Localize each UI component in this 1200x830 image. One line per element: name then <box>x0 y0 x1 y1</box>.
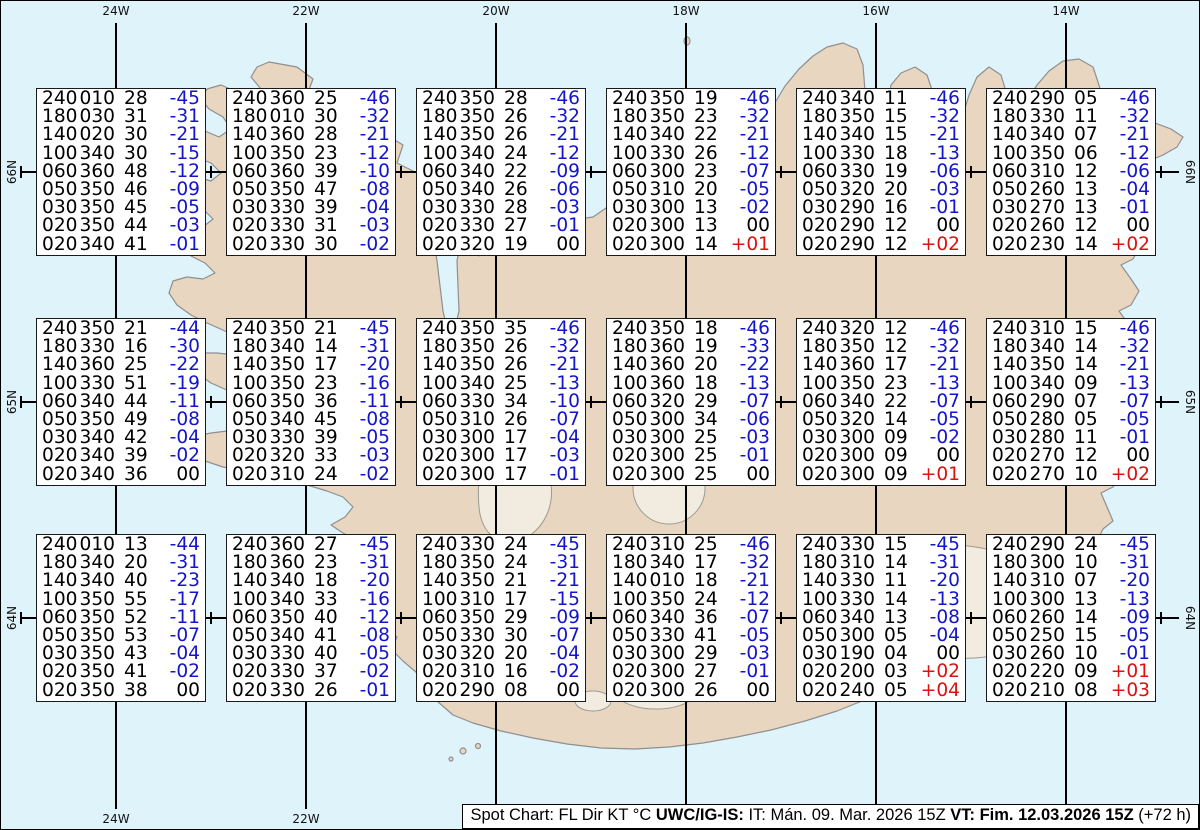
spot-data-row: 02027010+02 <box>992 466 1150 484</box>
spot-box-64N-24W: 24001013-4418034020-3114034040-231003505… <box>36 534 206 702</box>
spot-box-66N-20W: 24035028-4618035026-3214035026-211003402… <box>416 88 586 256</box>
temperature-value: +02 <box>1111 236 1150 254</box>
caption-segment: Spot Chart: FL Dir KT °C <box>470 806 655 825</box>
flight-level-value: 020 <box>802 663 838 681</box>
flight-level-value: 140 <box>422 356 458 374</box>
wind-speed-value: 22 <box>694 126 718 144</box>
flight-level-value: 140 <box>992 572 1028 590</box>
wind-speed-value: 12 <box>884 236 908 254</box>
temperature-value: -01 <box>735 447 770 465</box>
wind-direction-value: 330 <box>270 682 306 700</box>
vestmannaeyjar-island <box>476 744 481 749</box>
wind-speed-value: 08 <box>504 682 528 700</box>
spot-data-row: 02034039-02 <box>42 447 200 465</box>
spot-data-row: 14035026-21 <box>422 356 580 374</box>
longitude-label-bottom: 24W <box>102 812 129 826</box>
wind-speed-value: 09 <box>1074 663 1098 681</box>
wind-direction-value: 300 <box>460 447 496 465</box>
temperature-value: +01 <box>921 466 960 484</box>
flight-level-value: 140 <box>612 572 648 590</box>
spot-box-64N-18W: 24031025-4618034017-3214001018-211003502… <box>606 534 776 702</box>
flight-level-value: 020 <box>42 663 78 681</box>
graticule-tick <box>780 612 782 624</box>
spot-data-row: 02031016-02 <box>422 663 580 681</box>
spot-data-row: 02023014+02 <box>992 236 1150 254</box>
flight-level-value: 020 <box>992 447 1028 465</box>
wind-speed-value: 12 <box>884 217 908 235</box>
spot-data-row: 14001018-21 <box>612 572 770 590</box>
flight-level-value: 020 <box>992 466 1028 484</box>
graticule-tick <box>20 612 22 624</box>
spot-data-row: 02020003+02 <box>802 663 960 681</box>
wind-speed-value: 39 <box>124 447 148 465</box>
spot-data-row: 02033037-02 <box>232 663 390 681</box>
spot-box-64N-16W: 24033015-4518031014-3114033011-201003301… <box>796 534 966 702</box>
spot-data-row: 02031024-02 <box>232 466 390 484</box>
wind-direction-value: 340 <box>650 126 686 144</box>
wind-direction-value: 340 <box>840 126 876 144</box>
wind-speed-value: 14 <box>1074 356 1098 374</box>
spot-data-row: 02032033-03 <box>232 447 390 465</box>
temperature-value: 00 <box>735 466 770 484</box>
temperature-value: -03 <box>165 217 200 235</box>
wind-speed-value: 30 <box>314 236 338 254</box>
temperature-value: 00 <box>545 236 580 254</box>
temperature-value: -21 <box>735 572 770 590</box>
spot-data-row: 02030014+01 <box>612 236 770 254</box>
temperature-value: -22 <box>165 356 200 374</box>
wind-speed-value: 26 <box>694 682 718 700</box>
temperature-value: -23 <box>165 572 200 590</box>
graticule-tick <box>590 612 592 624</box>
flight-level-value: 020 <box>232 682 268 700</box>
temperature-value: +02 <box>1111 466 1150 484</box>
flight-level-value: 140 <box>232 572 268 590</box>
wind-speed-value: 20 <box>694 356 718 374</box>
wind-speed-value: 18 <box>694 572 718 590</box>
temperature-value: -01 <box>165 236 200 254</box>
spot-data-row: 14034015-21 <box>802 126 960 144</box>
flight-level-value: 020 <box>992 682 1028 700</box>
wind-direction-value: 340 <box>270 572 306 590</box>
wind-speed-value: 27 <box>694 663 718 681</box>
latitude-label-right: 64N <box>1183 606 1197 630</box>
graticule-tick <box>780 396 782 408</box>
graticule-tick <box>210 396 212 408</box>
spot-box-65N-14W: 24031015-4618034014-3214035014-211003400… <box>986 318 1156 486</box>
flight-level-value: 020 <box>422 217 458 235</box>
wind-direction-value: 290 <box>840 236 876 254</box>
longitude-label-top: 22W <box>292 4 319 18</box>
flight-level-value: 140 <box>232 126 268 144</box>
wind-direction-value: 300 <box>650 663 686 681</box>
spot-chart-map: 24W24W22W22W20W18W16W14W66N66N65N65N64N6… <box>0 0 1200 830</box>
spot-data-row: 02021008+03 <box>992 682 1150 700</box>
wind-speed-value: 33 <box>314 447 338 465</box>
wind-speed-value: 07 <box>1074 572 1098 590</box>
spot-data-row: 14031007-20 <box>992 572 1150 590</box>
temperature-value: -03 <box>355 447 390 465</box>
wind-direction-value: 310 <box>1030 572 1066 590</box>
spot-data-row: 02030017-03 <box>422 447 580 465</box>
wind-speed-value: 41 <box>124 236 148 254</box>
flight-level-value: 020 <box>42 217 78 235</box>
wind-speed-value: 09 <box>884 447 908 465</box>
latitude-label-left: 65N <box>5 390 19 414</box>
longitude-label-top: 18W <box>672 4 699 18</box>
wind-speed-value: 19 <box>504 236 528 254</box>
wind-speed-value: 37 <box>314 663 338 681</box>
wind-direction-value: 340 <box>80 466 116 484</box>
longitude-label-top: 24W <box>102 4 129 18</box>
spot-data-row: 0203000900 <box>802 447 960 465</box>
temperature-value: -02 <box>545 663 580 681</box>
flight-level-value: 140 <box>802 572 838 590</box>
flight-level-value: 020 <box>802 466 838 484</box>
spot-data-row: 14035014-21 <box>992 356 1150 374</box>
wind-speed-value: 05 <box>884 682 908 700</box>
wind-direction-value: 330 <box>270 236 306 254</box>
graticule-tick <box>20 166 22 178</box>
wind-speed-value: 38 <box>124 682 148 700</box>
flight-level-value: 020 <box>232 217 268 235</box>
wind-direction-value: 210 <box>1030 682 1066 700</box>
wind-direction-value: 300 <box>650 217 686 235</box>
temperature-value: -22 <box>735 356 770 374</box>
flight-level-value: 140 <box>232 356 268 374</box>
wind-speed-value: 12 <box>1074 447 1098 465</box>
flight-level-value: 020 <box>612 466 648 484</box>
graticule-tick <box>400 166 402 178</box>
wind-speed-value: 17 <box>314 356 338 374</box>
wind-direction-value: 240 <box>840 682 876 700</box>
wind-direction-value: 330 <box>270 217 306 235</box>
spot-data-row: 14036025-22 <box>42 356 200 374</box>
wind-speed-value: 30 <box>124 126 148 144</box>
spot-box-64N-20W: 24033024-4518035024-3114035021-211003101… <box>416 534 586 702</box>
temperature-value: +01 <box>731 236 770 254</box>
wind-direction-value: 330 <box>270 663 306 681</box>
wind-direction-value: 200 <box>840 663 876 681</box>
temperature-value: 00 <box>925 217 960 235</box>
graticule-tick <box>970 396 972 408</box>
wind-direction-value: 350 <box>1030 356 1066 374</box>
spot-box-66N-14W: 24029005-4618033011-3214034007-211003500… <box>986 88 1156 256</box>
wind-speed-value: 17 <box>504 447 528 465</box>
spot-data-row: 02030027-01 <box>612 663 770 681</box>
spot-box-65N-18W: 24035018-4618036019-3314036020-221003601… <box>606 318 776 486</box>
spot-data-row: 0203002500 <box>612 466 770 484</box>
spot-data-row: 02033027-01 <box>422 217 580 235</box>
temperature-value: 00 <box>925 447 960 465</box>
temperature-value: -02 <box>355 663 390 681</box>
caption-bar: Spot Chart: FL Dir KT °C UWC/IG-IS: IT: … <box>462 804 1199 829</box>
spot-data-row: 14035017-20 <box>232 356 390 374</box>
caption-segment: VT: Fim. 12.03.2026 15Z <box>950 806 1133 825</box>
wind-direction-value: 300 <box>650 447 686 465</box>
flight-level-value: 020 <box>612 682 648 700</box>
flight-level-value: 020 <box>42 447 78 465</box>
flight-level-value: 020 <box>422 663 458 681</box>
temperature-value: 00 <box>165 682 200 700</box>
spot-data-row: 14033011-20 <box>802 572 960 590</box>
wind-speed-value: 13 <box>694 217 718 235</box>
flight-level-value: 140 <box>422 126 458 144</box>
longitude-label-top: 16W <box>862 4 889 18</box>
graticule-tick <box>20 396 22 408</box>
flight-level-value: 140 <box>612 126 648 144</box>
wind-direction-value: 300 <box>650 466 686 484</box>
spot-box-66N-22W: 24036025-4618001030-3214036028-211003502… <box>226 88 396 256</box>
flight-level-value: 140 <box>42 572 78 590</box>
graticule-tick <box>590 396 592 408</box>
wind-direction-value: 340 <box>80 572 116 590</box>
temperature-value: -21 <box>925 356 960 374</box>
graticule-tick <box>590 166 592 178</box>
wind-speed-value: 36 <box>124 466 148 484</box>
wind-direction-value: 010 <box>650 572 686 590</box>
spot-data-row: 0202601200 <box>992 217 1150 235</box>
graticule-tick <box>970 166 972 178</box>
flight-level-value: 020 <box>232 663 268 681</box>
flight-level-value: 020 <box>232 447 268 465</box>
wind-speed-value: 16 <box>504 663 528 681</box>
spot-data-row: 0202900800 <box>422 682 580 700</box>
spot-data-row: 0203001300 <box>612 217 770 235</box>
latitude-label-right: 66N <box>1183 160 1197 184</box>
wind-speed-value: 09 <box>884 466 908 484</box>
longitude-label-top: 20W <box>482 4 509 18</box>
longitude-label-top: 14W <box>1052 4 1079 18</box>
temperature-value: -02 <box>355 466 390 484</box>
spot-data-row: 02033031-03 <box>232 217 390 235</box>
graticule-tick <box>210 166 212 178</box>
spot-data-row: 02024005+04 <box>802 682 960 700</box>
spot-data-row: 02033030-02 <box>232 236 390 254</box>
wind-direction-value: 220 <box>1030 663 1066 681</box>
flight-level-value: 020 <box>802 447 838 465</box>
temperature-value: -01 <box>735 663 770 681</box>
wind-direction-value: 300 <box>840 447 876 465</box>
wind-direction-value: 270 <box>1030 447 1066 465</box>
caption-segment: IT: Mán. 09. Mar. 2026 15Z <box>744 806 950 825</box>
wind-speed-value: 14 <box>1074 236 1098 254</box>
temperature-value: -21 <box>545 126 580 144</box>
wind-direction-value: 350 <box>80 217 116 235</box>
flight-level-value: 020 <box>422 447 458 465</box>
flight-level-value: 140 <box>42 126 78 144</box>
spot-data-row: 0203002600 <box>612 682 770 700</box>
wind-direction-value: 350 <box>460 126 496 144</box>
wind-direction-value: 310 <box>460 663 496 681</box>
temperature-value: +01 <box>1111 663 1150 681</box>
flight-level-value: 140 <box>612 356 648 374</box>
wind-speed-value: 26 <box>504 126 528 144</box>
temperature-value: -21 <box>735 126 770 144</box>
wind-speed-value: 44 <box>124 217 148 235</box>
temperature-value: 00 <box>735 682 770 700</box>
spot-data-row: 14035026-21 <box>422 126 580 144</box>
temperature-value: -01 <box>545 217 580 235</box>
spot-box-64N-14W: 24029024-4518030010-3114031007-201003001… <box>986 534 1156 702</box>
graticule-tick <box>970 612 972 624</box>
spot-data-row: 14035021-21 <box>422 572 580 590</box>
wind-direction-value: 320 <box>460 236 496 254</box>
wind-direction-value: 020 <box>80 126 116 144</box>
flight-level-value: 020 <box>422 682 458 700</box>
temperature-value: 00 <box>165 466 200 484</box>
temperature-value: -21 <box>545 356 580 374</box>
temperature-value: 00 <box>1115 447 1150 465</box>
spot-box-65N-24W: 24035021-4418033016-3014036025-221003305… <box>36 318 206 486</box>
wind-direction-value: 350 <box>460 572 496 590</box>
flight-level-value: 020 <box>992 663 1028 681</box>
wind-speed-value: 17 <box>884 356 908 374</box>
spot-data-row: 02030009+01 <box>802 466 960 484</box>
wind-speed-value: 14 <box>694 236 718 254</box>
wind-speed-value: 25 <box>124 356 148 374</box>
latitude-label-right: 65N <box>1183 390 1197 414</box>
flight-level-value: 020 <box>992 217 1028 235</box>
flight-level-value: 020 <box>802 236 838 254</box>
spot-data-row: 0203201900 <box>422 236 580 254</box>
flight-level-value: 020 <box>612 663 648 681</box>
wind-direction-value: 340 <box>80 236 116 254</box>
spot-data-row: 14034018-20 <box>232 572 390 590</box>
flight-level-value: 020 <box>612 236 648 254</box>
spot-box-66N-16W: 24034011-4618035015-3214034015-211003301… <box>796 88 966 256</box>
wind-speed-value: 26 <box>314 682 338 700</box>
wind-direction-value: 300 <box>650 682 686 700</box>
flight-level-value: 140 <box>422 572 458 590</box>
temperature-value: -21 <box>165 126 200 144</box>
spot-data-row: 14036020-22 <box>612 356 770 374</box>
temperature-value: +04 <box>921 682 960 700</box>
caption-segment: UWC/IG-IS: <box>656 806 744 825</box>
spot-box-66N-24W: 24001028-4518003031-3114002030-211003403… <box>36 88 206 256</box>
longitude-label-bottom: 22W <box>292 812 319 826</box>
wind-direction-value: 290 <box>460 682 496 700</box>
spot-data-row: 14034007-21 <box>992 126 1150 144</box>
flight-level-value: 020 <box>42 682 78 700</box>
wind-speed-value: 25 <box>694 466 718 484</box>
spot-data-row: 14036028-21 <box>232 126 390 144</box>
wind-speed-value: 12 <box>1074 217 1098 235</box>
wind-speed-value: 28 <box>314 126 338 144</box>
latitude-label-left: 64N <box>5 606 19 630</box>
temperature-value: -20 <box>1115 572 1150 590</box>
flight-level-value: 020 <box>422 236 458 254</box>
temperature-value: -21 <box>925 126 960 144</box>
vestmannaeyjar-island <box>449 757 453 761</box>
wind-direction-value: 360 <box>270 126 306 144</box>
temperature-value: 00 <box>735 217 770 235</box>
graticule-tick <box>400 396 402 408</box>
wind-direction-value: 300 <box>840 466 876 484</box>
flight-level-value: 020 <box>42 236 78 254</box>
graticule-tick <box>400 612 402 624</box>
wind-direction-value: 360 <box>650 356 686 374</box>
wind-direction-value: 320 <box>270 447 306 465</box>
temperature-value: -20 <box>355 572 390 590</box>
temperature-value: -02 <box>165 447 200 465</box>
wind-direction-value: 340 <box>1030 126 1066 144</box>
temperature-value: -21 <box>545 572 580 590</box>
graticule-tick <box>1160 166 1162 178</box>
spot-data-row: 0203403600 <box>42 466 200 484</box>
graticule-tick <box>780 166 782 178</box>
vestmannaeyjar-island <box>460 748 466 754</box>
flight-level-value: 020 <box>992 236 1028 254</box>
flight-level-value: 020 <box>422 466 458 484</box>
wind-speed-value: 07 <box>1074 126 1098 144</box>
spot-data-row: 02033026-01 <box>232 682 390 700</box>
wind-speed-value: 10 <box>1074 466 1098 484</box>
temperature-value: -01 <box>355 682 390 700</box>
graticule-tick <box>210 612 212 624</box>
flight-level-value: 140 <box>802 126 838 144</box>
temperature-value: 00 <box>1115 217 1150 235</box>
wind-direction-value: 230 <box>1030 236 1066 254</box>
spot-box-65N-20W: 24035035-4618035026-3214035026-211003402… <box>416 318 586 486</box>
spot-data-row: 02022009+01 <box>992 663 1150 681</box>
wind-speed-value: 31 <box>314 217 338 235</box>
spot-data-row: 02034041-01 <box>42 236 200 254</box>
spot-data-row: 0202901200 <box>802 217 960 235</box>
flight-level-value: 020 <box>42 466 78 484</box>
wind-speed-value: 41 <box>124 663 148 681</box>
wind-speed-value: 26 <box>504 356 528 374</box>
spot-box-65N-16W: 24032012-4618035012-3214036017-211003502… <box>796 318 966 486</box>
wind-speed-value: 21 <box>504 572 528 590</box>
spot-box-65N-22W: 24035021-4518034014-3114035017-201003502… <box>226 318 396 486</box>
temperature-value: +03 <box>1111 682 1150 700</box>
flight-level-value: 140 <box>802 356 838 374</box>
graticule-tick <box>1160 396 1162 408</box>
temperature-value: -21 <box>1115 356 1150 374</box>
flight-level-value: 140 <box>992 126 1028 144</box>
wind-direction-value: 300 <box>650 236 686 254</box>
temperature-value: -03 <box>545 447 580 465</box>
wind-speed-value: 25 <box>694 447 718 465</box>
wind-direction-value: 350 <box>270 356 306 374</box>
wind-direction-value: 360 <box>840 356 876 374</box>
wind-direction-value: 360 <box>80 356 116 374</box>
wind-direction-value: 330 <box>460 217 496 235</box>
wind-speed-value: 08 <box>1074 682 1098 700</box>
wind-speed-value: 03 <box>884 663 908 681</box>
wind-speed-value: 27 <box>504 217 528 235</box>
wind-direction-value: 350 <box>80 682 116 700</box>
temperature-value: -02 <box>165 663 200 681</box>
wind-speed-value: 11 <box>884 572 908 590</box>
temperature-value: -21 <box>355 126 390 144</box>
spot-box-64N-22W: 24036027-4518036023-3114034018-201003403… <box>226 534 396 702</box>
spot-box-66N-18W: 24035019-4618035023-3214034022-211003302… <box>606 88 776 256</box>
spot-data-row: 02030025-01 <box>612 447 770 465</box>
flight-level-value: 020 <box>612 217 648 235</box>
temperature-value: -02 <box>355 236 390 254</box>
wind-direction-value: 350 <box>460 356 496 374</box>
flight-level-value: 140 <box>992 356 1028 374</box>
wind-direction-value: 270 <box>1030 466 1066 484</box>
wind-direction-value: 340 <box>80 447 116 465</box>
wind-direction-value: 300 <box>460 466 496 484</box>
flight-level-value: 020 <box>232 236 268 254</box>
spot-data-row: 02029012+02 <box>802 236 960 254</box>
wind-speed-value: 17 <box>504 466 528 484</box>
wind-direction-value: 330 <box>840 572 876 590</box>
